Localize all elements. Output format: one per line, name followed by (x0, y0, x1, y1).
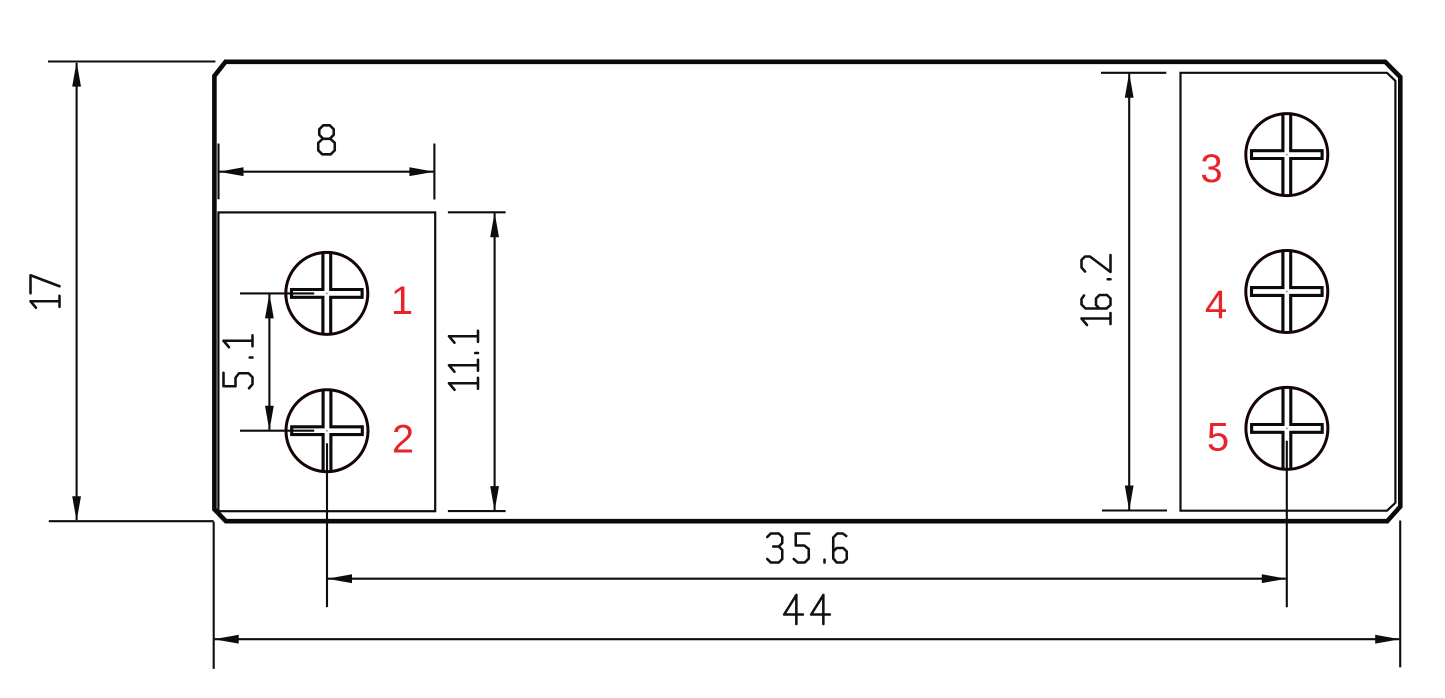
svg-text:3: 3 (1200, 147, 1222, 191)
svg-text:2: 2 (392, 418, 414, 462)
svg-text:4: 4 (1205, 283, 1227, 327)
svg-text:5: 5 (1207, 416, 1229, 460)
svg-text:1: 1 (391, 279, 413, 323)
